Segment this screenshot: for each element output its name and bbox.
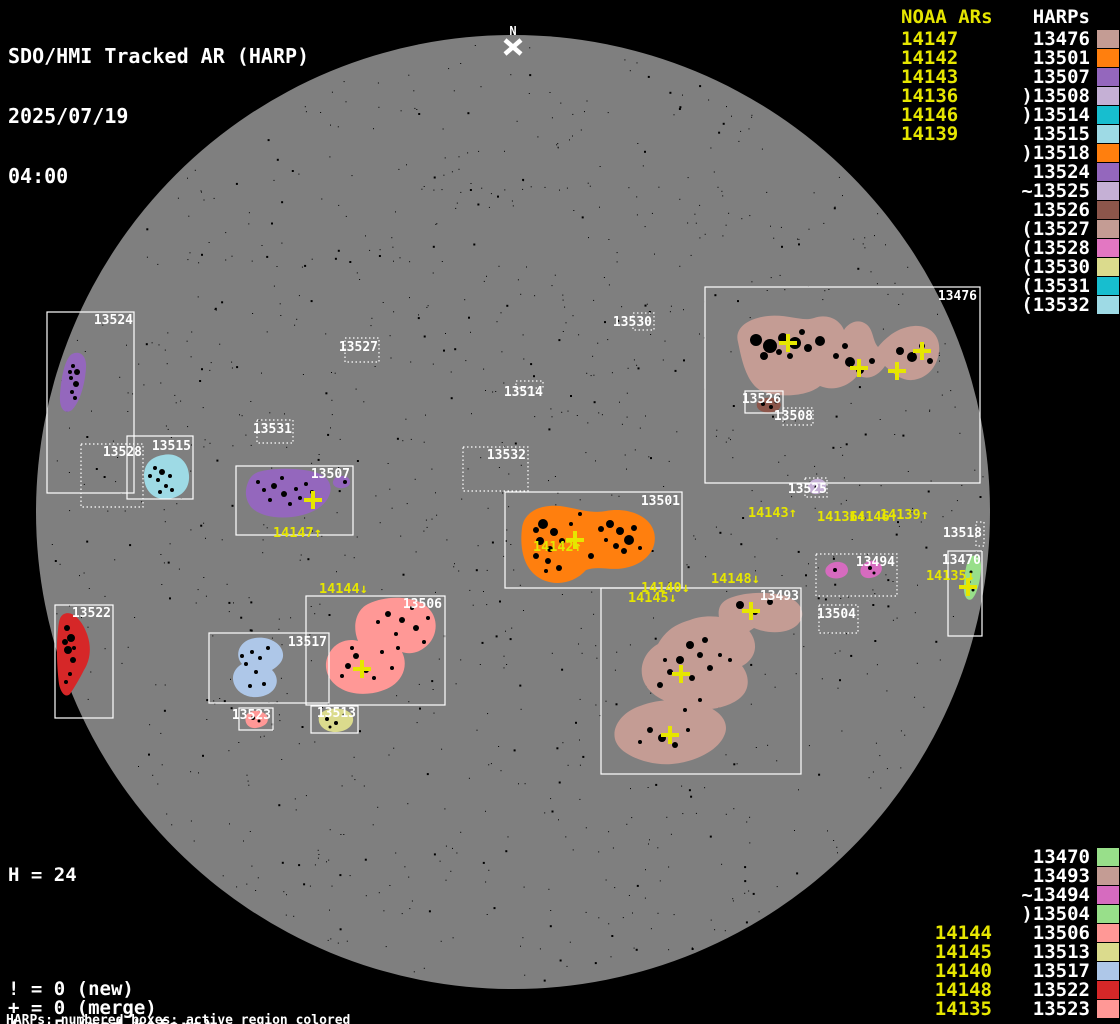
harp-color-swatch-13513 (1097, 943, 1119, 961)
harp-color-swatch-13501 (1097, 49, 1119, 67)
harps-header: HARPs (1021, 8, 1090, 27)
harp-label-13526: 13526 (742, 392, 781, 407)
noaa-ars-top-list: 141471414214143141361414614139 (901, 30, 993, 144)
harp-number: 13523 (1021, 1000, 1090, 1019)
harp-color-swatch-13494 (1097, 886, 1119, 904)
noaa-ars-top-column: NOAA ARs 141471414214143141361414614139 (901, 8, 993, 144)
harp-label-13530: 13530 (613, 315, 652, 330)
plot-title: SDO/HMI Tracked AR (HARP) (8, 46, 309, 66)
harp-color-swatch-13531 (1097, 277, 1119, 295)
sdo-hmi-harp-visualization: 1347613501135071350813514135151351813524… (0, 0, 1120, 1024)
harp-label-13506: 13506 (403, 597, 442, 612)
harp-label-13527: 13527 (339, 340, 378, 355)
harp-color-swatch-13532 (1097, 296, 1119, 314)
harp-color-swatch-13525 (1097, 182, 1119, 200)
harp-color-swatch-13507 (1097, 68, 1119, 86)
noaa-label: 14143↑ (748, 505, 797, 521)
harp-color-swatch-13517 (1097, 962, 1119, 980)
harp-count: H = 24 (8, 866, 225, 885)
noaa-label: 14148↓ (711, 571, 760, 587)
harp-label-13531: 13531 (253, 422, 292, 437)
harp-color-swatch-13514 (1097, 106, 1119, 124)
noaa-ar-number: 14139 (901, 125, 993, 144)
plot-date: 2025/07/19 (8, 106, 309, 126)
harp-color-swatch-13518 (1097, 144, 1119, 162)
harp-color-swatch-13476 (1097, 30, 1119, 48)
harp-label-13494: 13494 (856, 555, 895, 570)
noaa-label: 14144↓ (319, 581, 368, 597)
harp-label-13476: 13476 (938, 289, 977, 304)
harp-label-13470: 13470 (942, 553, 981, 568)
harps-top-list: 134761350113507)13508)1351413515)1351813… (1021, 30, 1090, 315)
footnotes: HARPs: numbered boxes; active region col… (6, 991, 460, 1024)
harp-color-swatch-13528 (1097, 239, 1119, 257)
harp-color-swatch-13530 (1097, 258, 1119, 276)
harp-label-13513: 13513 (317, 706, 356, 721)
harp-color-swatch-13504 (1097, 905, 1119, 923)
harp-label-13532: 13532 (487, 448, 526, 463)
harp-label-13517: 13517 (288, 635, 327, 650)
harps-bottom-list: 1347013493~13494)13504135061351313517135… (1021, 848, 1090, 1019)
harp-color-swatch-13515 (1097, 125, 1119, 143)
harp-label-13524: 13524 (94, 313, 133, 328)
harp-color-swatch-13523 (1097, 1000, 1119, 1018)
plot-time: 04:00 (8, 166, 309, 186)
noaa-label: 14140↓ (641, 580, 690, 596)
harp-label-13518: 13518 (943, 526, 982, 541)
harp-label-13501: 13501 (641, 494, 680, 509)
noaa-label: 14139↑ (880, 507, 929, 523)
noaa-label: 14147↑ (273, 525, 322, 541)
noaa-ars-header: NOAA ARs (901, 8, 993, 27)
harp-color-swatch-13522 (1097, 981, 1119, 999)
harp-label-13522: 13522 (72, 606, 111, 621)
harp-label-13515: 13515 (152, 439, 191, 454)
harp-color-swatch-13470 (1097, 848, 1119, 866)
harp-color-swatch-13493 (1097, 867, 1119, 885)
noaa-ars-bottom-list: 1414414145141401414814135 (935, 924, 992, 1019)
noaa-label: 14135↓ (926, 568, 975, 584)
harps-top-column: HARPs 134761350113507)13508)1351413515)1… (1021, 8, 1090, 315)
harp-label-13523: 13523 (232, 708, 271, 723)
harp-label-13493: 13493 (760, 589, 799, 604)
footnote-harps: HARPs: numbered boxes; active region col… (6, 1015, 460, 1024)
harp-label-13504: 13504 (817, 607, 856, 622)
north-label: N (509, 24, 516, 38)
harp-color-swatch-13506 (1097, 924, 1119, 942)
harp-color-swatch-13508 (1097, 87, 1119, 105)
harp-color-swatch-13526 (1097, 201, 1119, 219)
harp-label-13507: 13507 (311, 467, 350, 482)
noaa-ar-number: 14135 (935, 1000, 992, 1019)
harp-label-13514: 13514 (504, 385, 543, 400)
harp-label-13508: 13508 (774, 409, 813, 424)
harp-label-13528: 13528 (103, 445, 142, 460)
harp-color-swatch-13524 (1097, 163, 1119, 181)
harp-number: (13532 (1021, 296, 1090, 315)
harp-label-13525: 13525 (788, 482, 827, 497)
title-block: SDO/HMI Tracked AR (HARP) 2025/07/19 04:… (8, 6, 309, 226)
noaa-label: 14142↑ (533, 539, 582, 555)
harp-color-swatch-13527 (1097, 220, 1119, 238)
